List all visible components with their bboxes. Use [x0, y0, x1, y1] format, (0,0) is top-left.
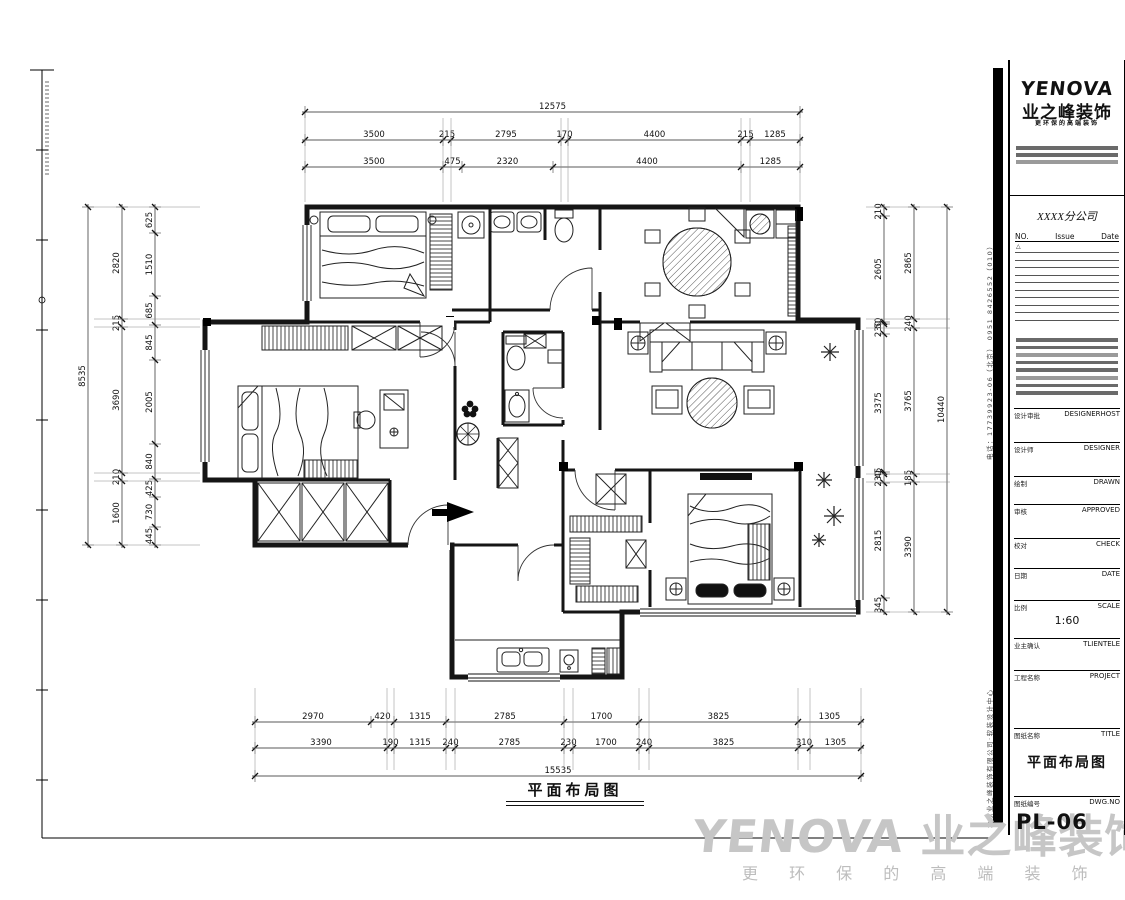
dim-value: 2785 — [499, 738, 521, 748]
dim-value: 1315 — [409, 738, 431, 748]
dim-value: 730 — [145, 504, 155, 520]
dim-value: 2815 — [874, 530, 884, 552]
door-bath-center — [533, 388, 563, 418]
revision-header: NO. Issue Date — [1015, 232, 1119, 242]
plant-balcony-3 — [812, 533, 826, 547]
rev-no: NO. — [1015, 232, 1029, 241]
dim-value: 3690 — [112, 389, 122, 411]
tb-label-en: DRAWN — [1093, 478, 1120, 488]
dim-value: 445 — [145, 528, 155, 544]
revision-line — [1015, 297, 1119, 298]
plant-balcony-1 — [816, 472, 832, 488]
door-master — [421, 332, 455, 366]
tb-label-cn: 业主确认 — [1014, 640, 1040, 650]
dim-value: 185 — [904, 470, 914, 486]
dim-chain-right_total: 10440 — [937, 204, 953, 615]
bath2-toilet — [555, 210, 573, 242]
watermark-tagline: 更 环 保 的 高 端 装 饰 — [742, 860, 1101, 884]
dim-value: 210 — [112, 469, 122, 485]
dim-value: 625 — [145, 212, 155, 228]
notice-text-blur — [1016, 353, 1118, 357]
tb-row-designer: 设计师DESIGNER — [1014, 442, 1120, 454]
tb-label-cn: 绘制 — [1014, 478, 1027, 488]
dim-value: 475 — [444, 157, 460, 167]
dim-value: 2970 — [302, 712, 324, 722]
entry-cabinet — [498, 438, 518, 488]
flower — [462, 401, 479, 418]
dim-value: 840 — [145, 453, 155, 469]
dining-curtain — [788, 226, 796, 316]
title-block: YENOVA 业之峰装饰 更环保的高端装饰 XXXX分公司 NO. Issue … — [1008, 60, 1125, 835]
tb-label-en: CHECK — [1096, 540, 1120, 550]
dim-value: 1305 — [819, 712, 841, 722]
tb-row-approved: 审核APPROVED — [1014, 504, 1120, 516]
drawing-sheet: { "sheet": { "caption": "平面布局图", "waterm… — [0, 0, 1125, 900]
rev-date: Date — [1101, 232, 1119, 241]
dim-chain-right_mid: 286524037651853390 — [904, 204, 920, 615]
tb-label-cn: 比例 — [1014, 602, 1027, 612]
dim-value: 8535 — [78, 365, 88, 387]
branch-name: XXXX分公司 — [1010, 208, 1124, 224]
dim-value: 2605 — [874, 258, 884, 280]
dim-value: 215 — [112, 315, 122, 331]
dim-chain-top_row1: 3500215279517044002151285 — [302, 130, 803, 146]
dim-value: 845 — [145, 334, 155, 350]
dim-value: 210 — [874, 203, 884, 219]
caption-underline — [506, 801, 644, 806]
dim-value: 4400 — [644, 130, 666, 140]
dim-value: 12575 — [539, 102, 566, 112]
notice-text-blur — [1016, 384, 1118, 388]
tb-label-en: APPROVED — [1082, 506, 1120, 516]
dim-value: 10440 — [937, 396, 947, 423]
dim-value: 1285 — [760, 157, 782, 167]
bedroom3-tv — [700, 473, 752, 480]
dim-value: 1315 — [409, 712, 431, 722]
plant-living — [821, 343, 839, 361]
tb-label-cn: 日期 — [1014, 570, 1027, 580]
furniture — [238, 208, 844, 674]
divider — [1010, 195, 1124, 196]
door-bath-top — [550, 268, 592, 310]
tb-label-cn: 校对 — [1014, 540, 1027, 550]
tb-label-cn: 图纸编号 — [1014, 798, 1040, 808]
dim-value: 215 — [439, 130, 455, 140]
tb-label-cn: 图纸名称 — [1014, 730, 1040, 740]
master-desk — [354, 390, 408, 448]
dim-chain-bottom_row1: 297042013152785170038251305 — [252, 712, 864, 728]
floor-plan: 1257535002152795170440021512853500475232… — [0, 0, 1125, 900]
dim-value: 310 — [796, 738, 812, 748]
bath1-fixtures — [458, 212, 541, 238]
window-balcony — [853, 478, 864, 600]
dining-corner-unit — [716, 209, 796, 238]
dim-value: 2795 — [495, 130, 517, 140]
tb-label-cn: 工程名称 — [1014, 672, 1040, 682]
dim-value: 170 — [556, 130, 572, 140]
dim-value: 1285 — [764, 130, 786, 140]
dim-value: 240 — [442, 738, 458, 748]
tb-label-en: SCALE — [1098, 602, 1120, 612]
margin-note-phone: 电话：17739923-06（北京） 0951 8426552（010） — [984, 242, 994, 460]
tb-row-tlientele: 业主确认TLIENTELE — [1014, 638, 1120, 650]
revision-line — [1015, 305, 1119, 306]
revision-line — [1015, 312, 1119, 313]
dim-value: 4400 — [636, 157, 658, 167]
plant-balcony-2 — [824, 506, 844, 526]
window-master — [199, 350, 210, 462]
hall-closet-row — [258, 483, 388, 541]
dim-value: 3375 — [874, 392, 884, 414]
tb-label-cn: 设计师 — [1014, 444, 1034, 454]
dim-value: 230 — [560, 738, 576, 748]
revision-triangle: △ — [1016, 243, 1021, 250]
tb-row-dwg-no: 图纸编号DWG.NO — [1014, 796, 1120, 808]
master-closet-band — [262, 326, 442, 350]
window-living — [853, 330, 864, 466]
dim-value: 190 — [382, 738, 398, 748]
dim-value: 2005 — [145, 391, 155, 413]
dim-chain-left_inner: 62515106858452005840425730445 — [145, 204, 161, 548]
dim-chain-left_mid: 282021536902101600 — [112, 204, 128, 548]
dim-value: 230 — [874, 321, 884, 337]
revision-line — [1015, 260, 1119, 261]
dim-value: 3500 — [363, 157, 385, 167]
tb-row-project: 工程名称PROJECT — [1014, 670, 1120, 682]
revision-line — [1015, 290, 1119, 291]
walkin-closet-shelves — [570, 474, 646, 602]
revision-line — [1015, 267, 1119, 268]
dim-value: 2865 — [904, 252, 914, 274]
dim-value: 685 — [145, 302, 155, 318]
tb-label-en: PROJECT — [1090, 672, 1120, 682]
tb-row-scale: 比例SCALE — [1014, 600, 1120, 612]
dim-value: 3390 — [904, 536, 914, 558]
revision-line — [1015, 275, 1119, 276]
notice-text-blur — [1016, 361, 1118, 365]
master-bed — [238, 386, 358, 478]
dim-value: 215 — [737, 130, 753, 140]
notice-text-blur — [1016, 376, 1118, 380]
company-tagline: 更环保的高端装饰 — [1010, 118, 1124, 127]
dining-set — [645, 208, 750, 318]
dim-value: 3500 — [363, 130, 385, 140]
address-blur — [1016, 160, 1118, 164]
address-blur — [1016, 146, 1118, 150]
revision-line — [1015, 252, 1119, 253]
notice-text-blur — [1016, 368, 1118, 372]
dim-value: 1700 — [595, 738, 617, 748]
tb-row-check: 校对CHECK — [1014, 538, 1120, 550]
dim-value: 240 — [904, 315, 914, 331]
tb-row-title: 图纸名称TITLE — [1014, 728, 1120, 740]
dim-chain-top_row2: 3500475232044001285 — [302, 157, 803, 173]
company-logo: YENOVA — [1009, 78, 1125, 100]
notice-text-blur — [1016, 391, 1118, 395]
dim-value: 2820 — [112, 252, 122, 274]
revision-line — [1015, 320, 1119, 321]
bedroom3-bed — [688, 494, 772, 604]
bedroom2-bed — [310, 212, 436, 298]
tb-label-cn: 审核 — [1014, 506, 1027, 516]
plan-caption: 平面布局图 — [500, 779, 650, 800]
tb-row-drawn: 绘制DRAWN — [1014, 476, 1120, 488]
rev-issue: Issue — [1055, 232, 1074, 241]
tb-value-dwg-no: PL-06 — [1016, 810, 1088, 834]
dim-value: 3825 — [713, 738, 735, 748]
dim-chain-top_total: 12575 — [302, 102, 803, 118]
opening-brace — [666, 323, 690, 341]
living-rug — [687, 378, 737, 428]
windows — [199, 225, 864, 682]
dim-value: 2320 — [497, 157, 519, 167]
dim-chain-right_inner: 2102605502303375452302815345 — [874, 203, 890, 615]
tb-label-cn: 设计审批 — [1014, 410, 1040, 420]
door-bedroom2 — [420, 322, 455, 357]
dim-value: 240 — [636, 738, 652, 748]
dim-value: 2785 — [494, 712, 516, 722]
dim-value: 1510 — [145, 254, 155, 276]
dim-value: 3765 — [904, 390, 914, 412]
bedroom2-wardrobe — [430, 214, 452, 290]
kitchen-counter — [455, 640, 620, 674]
window-bedroom3 — [640, 607, 856, 617]
tb-value-title: 平面布局图 — [1010, 752, 1124, 772]
window-bedroom2 — [301, 225, 312, 301]
tb-row-designerhost: 设计审批DESIGNERHOST — [1014, 408, 1120, 420]
center-bathroom-fixtures — [505, 334, 562, 422]
notice-text-blur — [1016, 346, 1118, 350]
tb-label-en: DATE — [1102, 570, 1120, 580]
notice-text-blur — [1016, 338, 1118, 342]
dim-value: 15535 — [544, 766, 571, 776]
dim-value: 345 — [874, 597, 884, 613]
revision-line — [1015, 282, 1119, 283]
tb-row-date: 日期DATE — [1014, 568, 1120, 580]
entry-arrow — [432, 502, 474, 522]
tb-label-en: DESIGNER — [1084, 444, 1120, 454]
door-kitchen — [518, 545, 554, 581]
dim-value: 1700 — [591, 712, 613, 722]
margin-text-blur — [45, 80, 49, 175]
tb-label-en: TITLE — [1101, 730, 1120, 740]
dim-value: 425 — [145, 480, 155, 496]
dim-value: 1600 — [112, 502, 122, 524]
bedroom3-nightstands — [666, 578, 794, 600]
tb-label-en: TLIENTELE — [1083, 640, 1120, 650]
watermark-logo: YENOVA — [690, 810, 906, 863]
tb-label-en: DWG.NO — [1089, 798, 1120, 808]
pinwheel — [457, 423, 479, 445]
dim-value: 420 — [374, 712, 390, 722]
dim-chain-left_total: 8535 — [78, 204, 94, 548]
dim-value: 3390 — [310, 738, 332, 748]
window-kitchen — [468, 672, 560, 682]
dim-chain-bottom_row2: 339019013152402785230170024038253101305 — [252, 738, 864, 754]
dim-value: 3825 — [708, 712, 730, 722]
dim-value: 230 — [874, 470, 884, 486]
tb-value-scale: 1:60 — [1010, 614, 1124, 627]
tb-label-en: DESIGNERHOST — [1064, 410, 1120, 420]
fold-bar — [993, 68, 1003, 825]
dim-value: 1305 — [825, 738, 847, 748]
address-blur — [1016, 153, 1118, 157]
